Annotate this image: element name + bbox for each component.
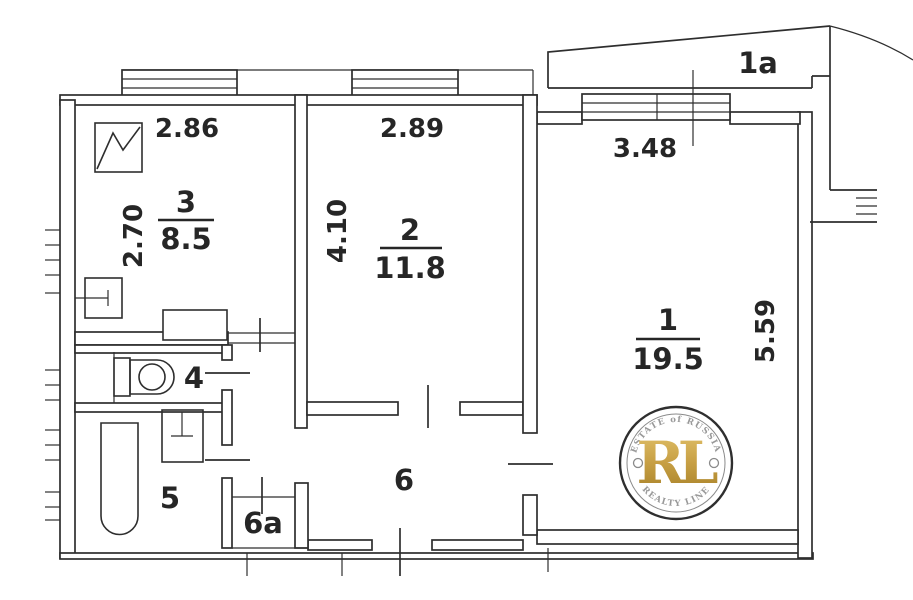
stair-break-mark [810, 190, 877, 222]
bathtub-icon [101, 423, 138, 535]
room-1-area: 19.5 [632, 342, 704, 376]
interior-walls [75, 95, 553, 576]
dim-room1-width: 3.48 [613, 134, 677, 164]
badge-monogram: RL [637, 429, 718, 497]
dim-room1-depth: 5.59 [751, 299, 781, 363]
window-room2 [352, 70, 458, 98]
room-3-area: 8.5 [160, 222, 211, 256]
dim-room2-width: 2.89 [380, 114, 444, 144]
room-6-label: 6 [394, 463, 414, 497]
floor-plan-page: 2.86 2.89 3.48 2.70 4.10 5.59 1a 3 8.5 2… [0, 0, 913, 600]
room-2-number: 2 [400, 213, 420, 247]
room-1a-label: 1a [738, 46, 778, 80]
room-2-area: 11.8 [374, 251, 446, 285]
room-3-number: 3 [176, 185, 196, 219]
floor-plan-drawing: 2.86 2.89 3.48 2.70 4.10 5.59 1a 3 8.5 2… [0, 0, 913, 600]
dim-room2-depth: 4.10 [323, 199, 353, 263]
room-5-label: 5 [160, 481, 180, 515]
room-1-number: 1 [658, 303, 678, 337]
kitchen-counter [163, 310, 227, 340]
room-4-label: 4 [184, 361, 204, 395]
window-room3 [122, 70, 237, 98]
bath-fixtures [101, 410, 203, 535]
left-wall-riser-ticks [45, 230, 60, 520]
dim-room3-width: 2.86 [155, 114, 219, 144]
dim-room3-depth: 2.70 [119, 204, 149, 268]
toilet-bowl-icon [130, 360, 174, 394]
watermark-badge: ESTATE of RUSSIA REALTY LINE RL [620, 407, 732, 519]
vent-shaft-icon [95, 123, 142, 172]
wc-fixtures [114, 352, 174, 403]
room-6a-label: 6a [243, 506, 283, 540]
toilet-tank-icon [114, 358, 130, 396]
